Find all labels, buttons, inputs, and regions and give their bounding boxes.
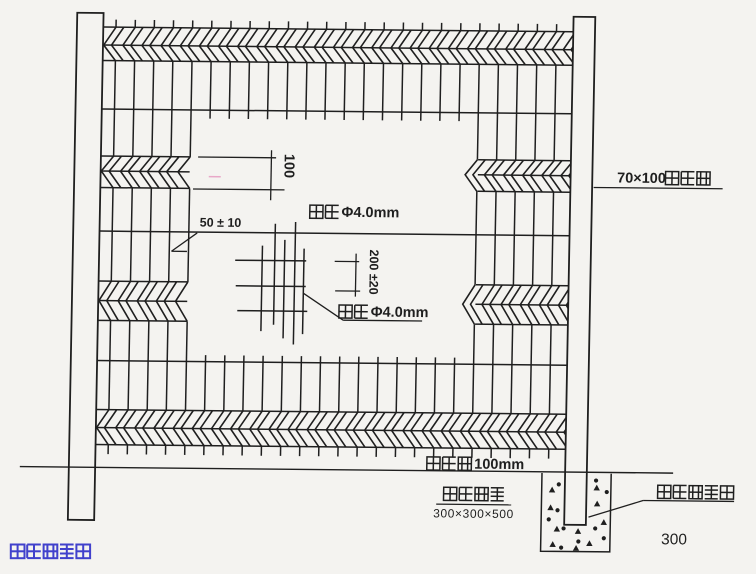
- svg-text:50 ± 10: 50 ± 10: [200, 216, 242, 230]
- svg-text:Φ4.0mm: Φ4.0mm: [341, 205, 399, 222]
- svg-text:100: 100: [280, 154, 296, 178]
- svg-text:300×300×500: 300×300×500: [433, 506, 514, 521]
- svg-text:100mm: 100mm: [474, 457, 524, 473]
- svg-text:Φ4.0mm: Φ4.0mm: [371, 305, 429, 322]
- svg-text:300: 300: [661, 531, 688, 548]
- svg-text:70×100: 70×100: [617, 171, 666, 187]
- svg-text:200 ±20: 200 ±20: [366, 249, 381, 294]
